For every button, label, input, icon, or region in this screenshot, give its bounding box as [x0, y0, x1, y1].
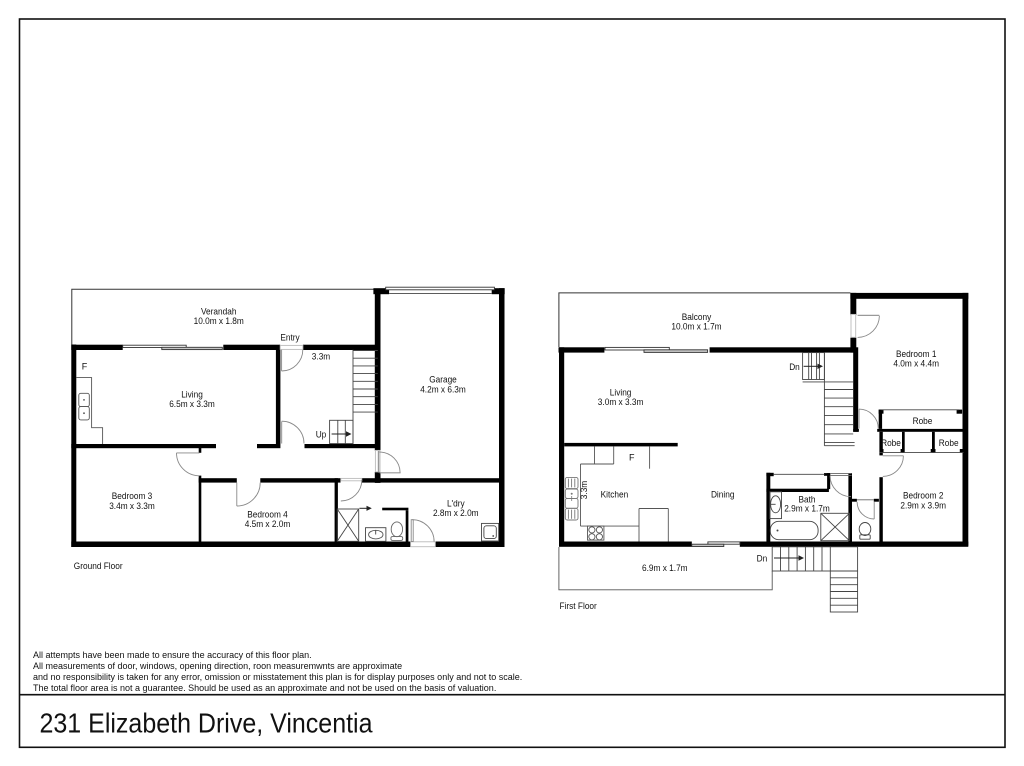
svg-text:and no responsibility is taken: and no responsibility is taken for any e… — [33, 672, 522, 682]
svg-text:3.4m x 3.3m: 3.4m x 3.3m — [109, 501, 155, 511]
svg-text:F: F — [629, 453, 635, 463]
svg-text:4.0m x 4.4m: 4.0m x 4.4m — [893, 358, 939, 368]
svg-text:L'dry: L'dry — [447, 499, 465, 509]
svg-text:Garage: Garage — [429, 375, 457, 385]
svg-text:4.2m x 6.3m: 4.2m x 6.3m — [420, 385, 466, 395]
svg-text:Dn: Dn — [789, 362, 800, 372]
svg-text:4.5m x 2.0m: 4.5m x 2.0m — [245, 519, 291, 529]
svg-text:10.0m x 1.8m: 10.0m x 1.8m — [194, 316, 244, 326]
svg-text:Bedroom 2: Bedroom 2 — [903, 491, 944, 501]
svg-text:3.3m: 3.3m — [312, 352, 330, 362]
svg-text:2.9m x 1.7m: 2.9m x 1.7m — [784, 504, 830, 514]
svg-text:Balcony: Balcony — [682, 312, 712, 322]
svg-text:6.5m x 3.3m: 6.5m x 3.3m — [169, 399, 215, 409]
svg-text:First Floor: First Floor — [560, 601, 597, 611]
svg-text:Robe: Robe — [939, 438, 959, 448]
svg-text:3.3m: 3.3m — [579, 481, 589, 499]
svg-text:The total floor area is not a: The total floor area is not a guarantee.… — [33, 683, 496, 693]
svg-text:3.0m x 3.3m: 3.0m x 3.3m — [598, 397, 644, 407]
svg-text:Ground Floor: Ground Floor — [74, 561, 123, 571]
svg-text:Dining: Dining — [711, 490, 735, 500]
svg-text:231 Elizabeth Drive, Vincentia: 231 Elizabeth Drive, Vincentia — [40, 708, 373, 739]
svg-text:Entry: Entry — [280, 333, 300, 343]
svg-text:Verandah: Verandah — [201, 307, 237, 317]
svg-text:All attempts have been made to: All attempts have been made to ensure th… — [33, 650, 312, 660]
svg-text:Robe: Robe — [881, 438, 901, 448]
svg-text:6.9m x 1.7m: 6.9m x 1.7m — [642, 563, 688, 573]
svg-text:F: F — [82, 362, 88, 372]
svg-text:Up: Up — [316, 430, 327, 440]
svg-text:Robe: Robe — [913, 416, 933, 426]
svg-text:All measurements of door, wind: All measurements of door, windows, openi… — [33, 661, 402, 671]
svg-text:Dn: Dn — [757, 554, 768, 564]
svg-text:10.0m x 1.7m: 10.0m x 1.7m — [671, 322, 721, 332]
svg-text:Bedroom 3: Bedroom 3 — [112, 491, 153, 501]
svg-text:2.9m x 3.9m: 2.9m x 3.9m — [900, 501, 946, 511]
svg-text:Living: Living — [181, 390, 203, 400]
svg-text:2.8m x 2.0m: 2.8m x 2.0m — [433, 508, 479, 518]
svg-text:Kitchen: Kitchen — [601, 490, 629, 500]
